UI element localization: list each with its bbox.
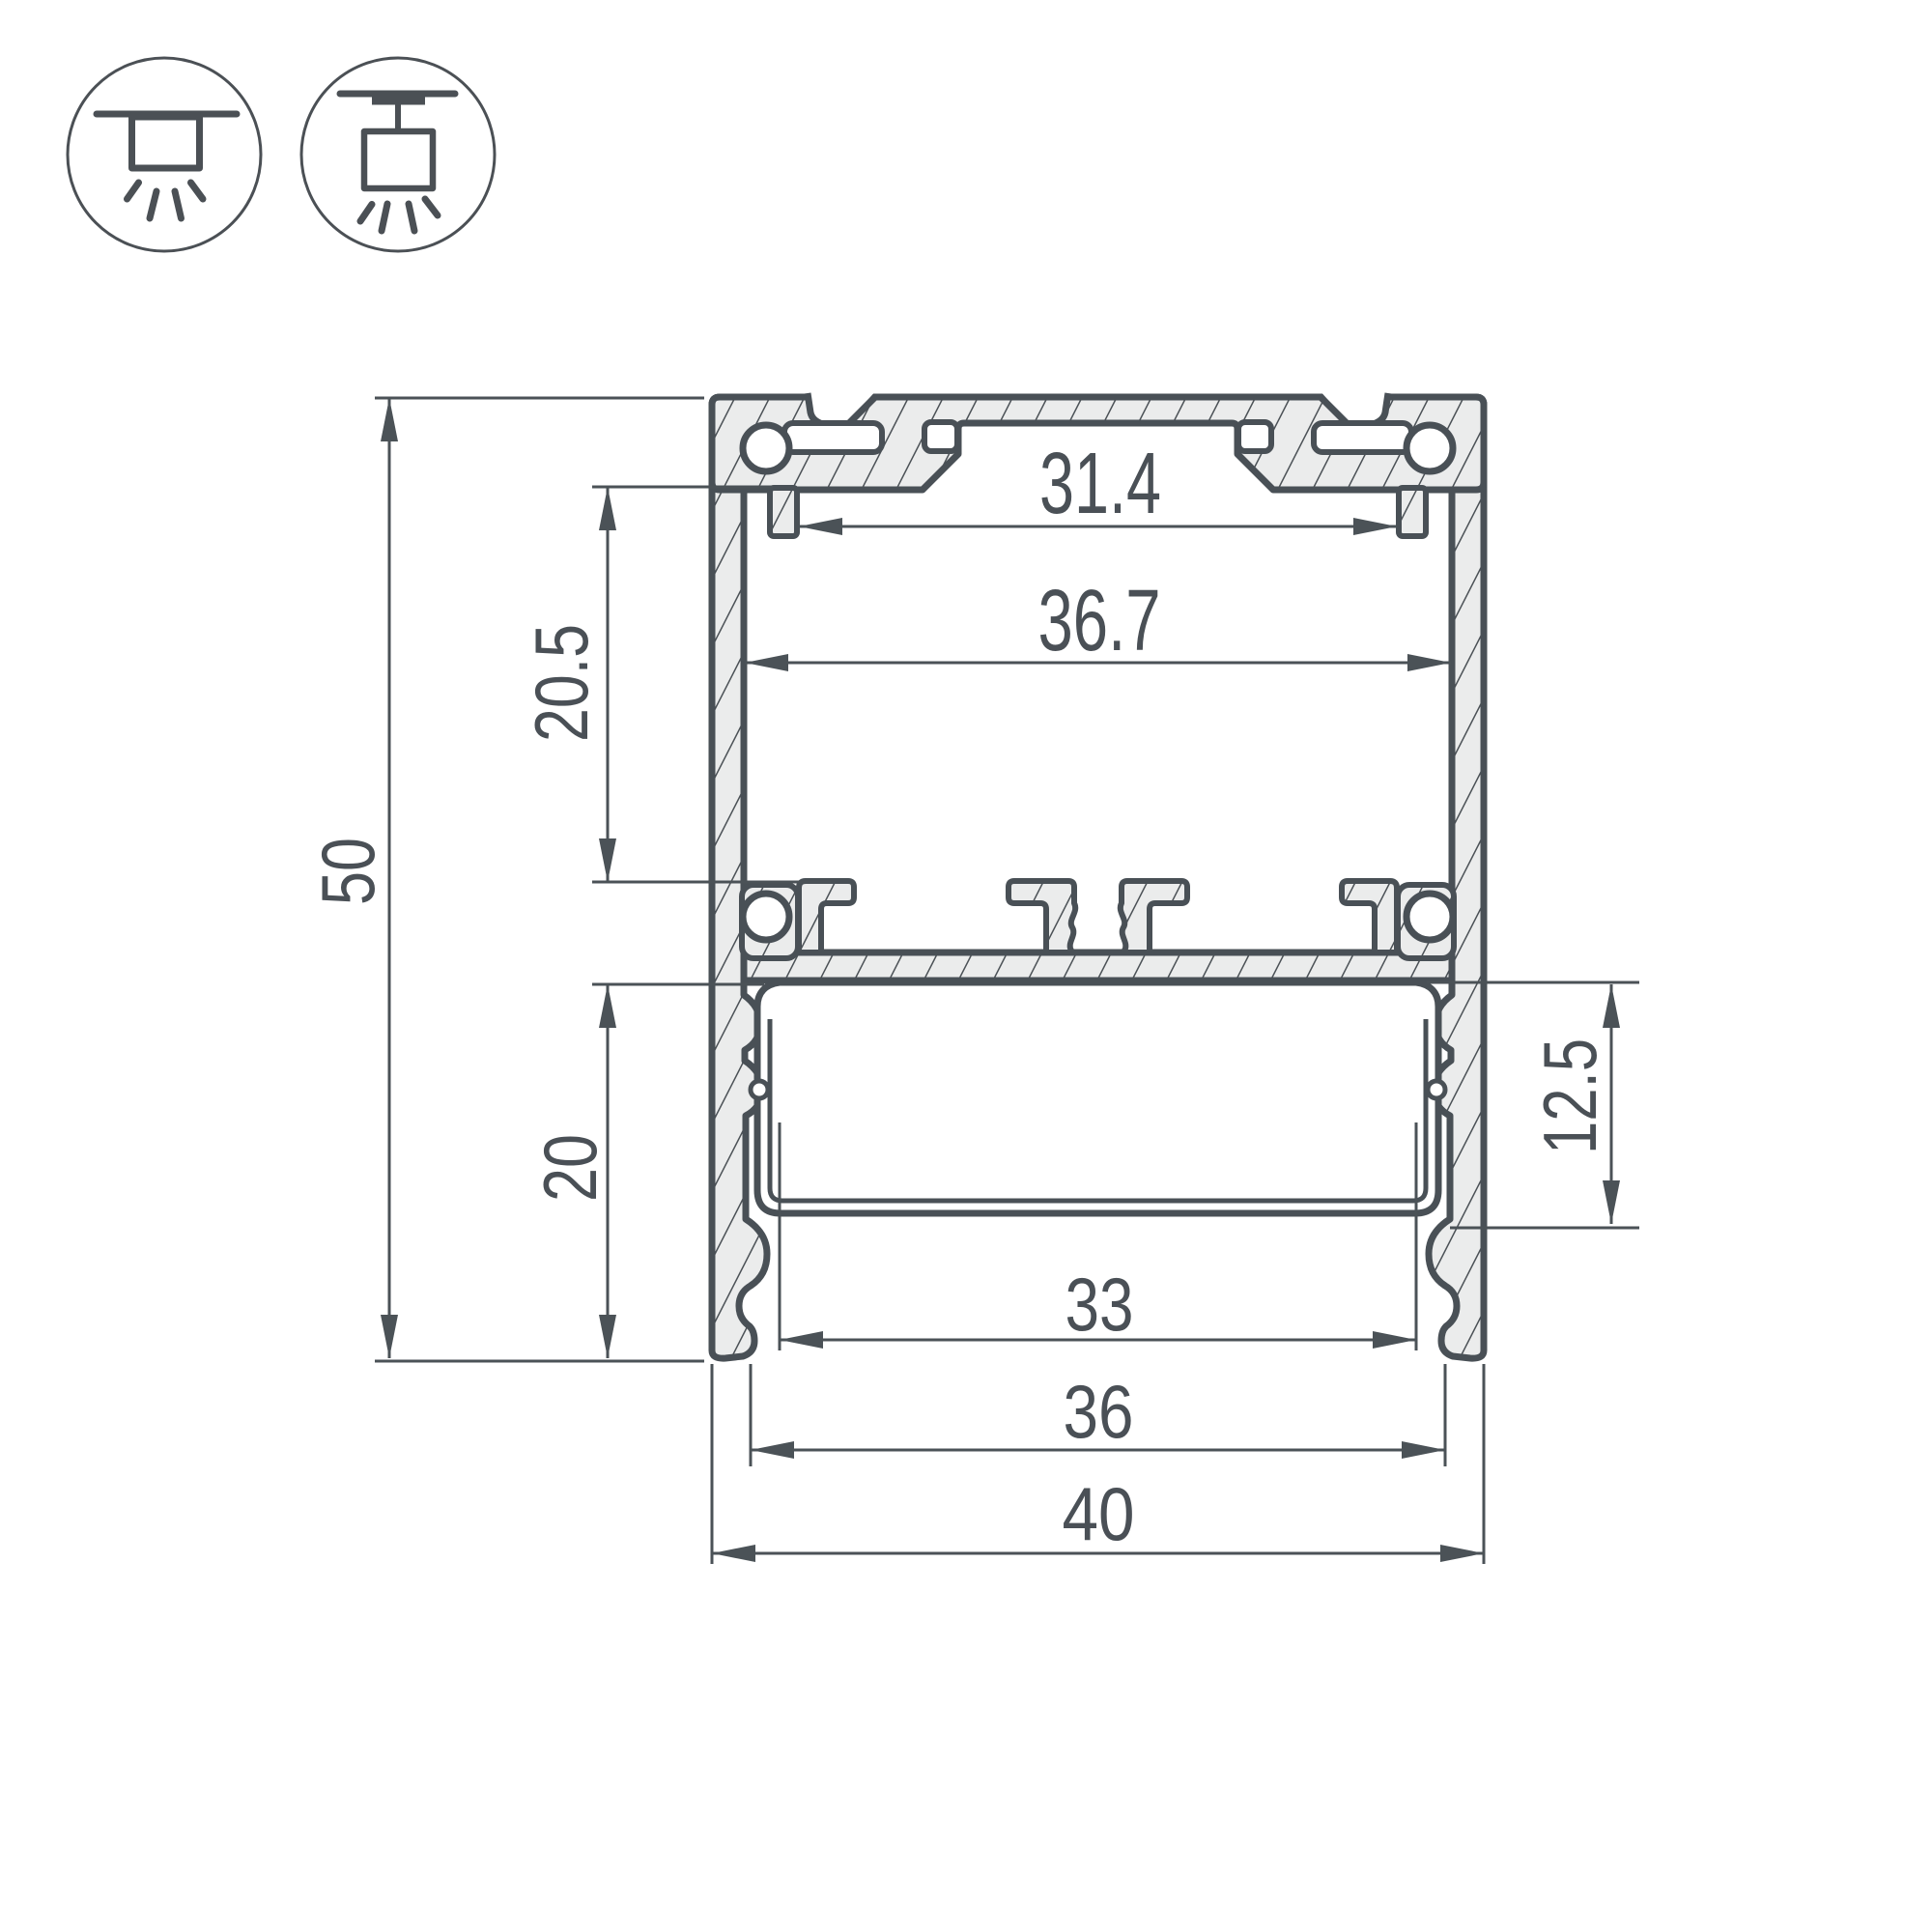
svg-text:36.7: 36.7 <box>1038 573 1161 669</box>
svg-text:12.5: 12.5 <box>1527 1038 1612 1154</box>
svg-text:20: 20 <box>527 1134 612 1202</box>
svg-text:50: 50 <box>305 838 390 905</box>
svg-text:31.4: 31.4 <box>1039 436 1161 532</box>
svg-text:36: 36 <box>1064 1369 1134 1454</box>
svg-text:20.5: 20.5 <box>519 624 604 742</box>
svg-text:40: 40 <box>1063 1471 1135 1556</box>
svg-text:33: 33 <box>1065 1262 1134 1347</box>
